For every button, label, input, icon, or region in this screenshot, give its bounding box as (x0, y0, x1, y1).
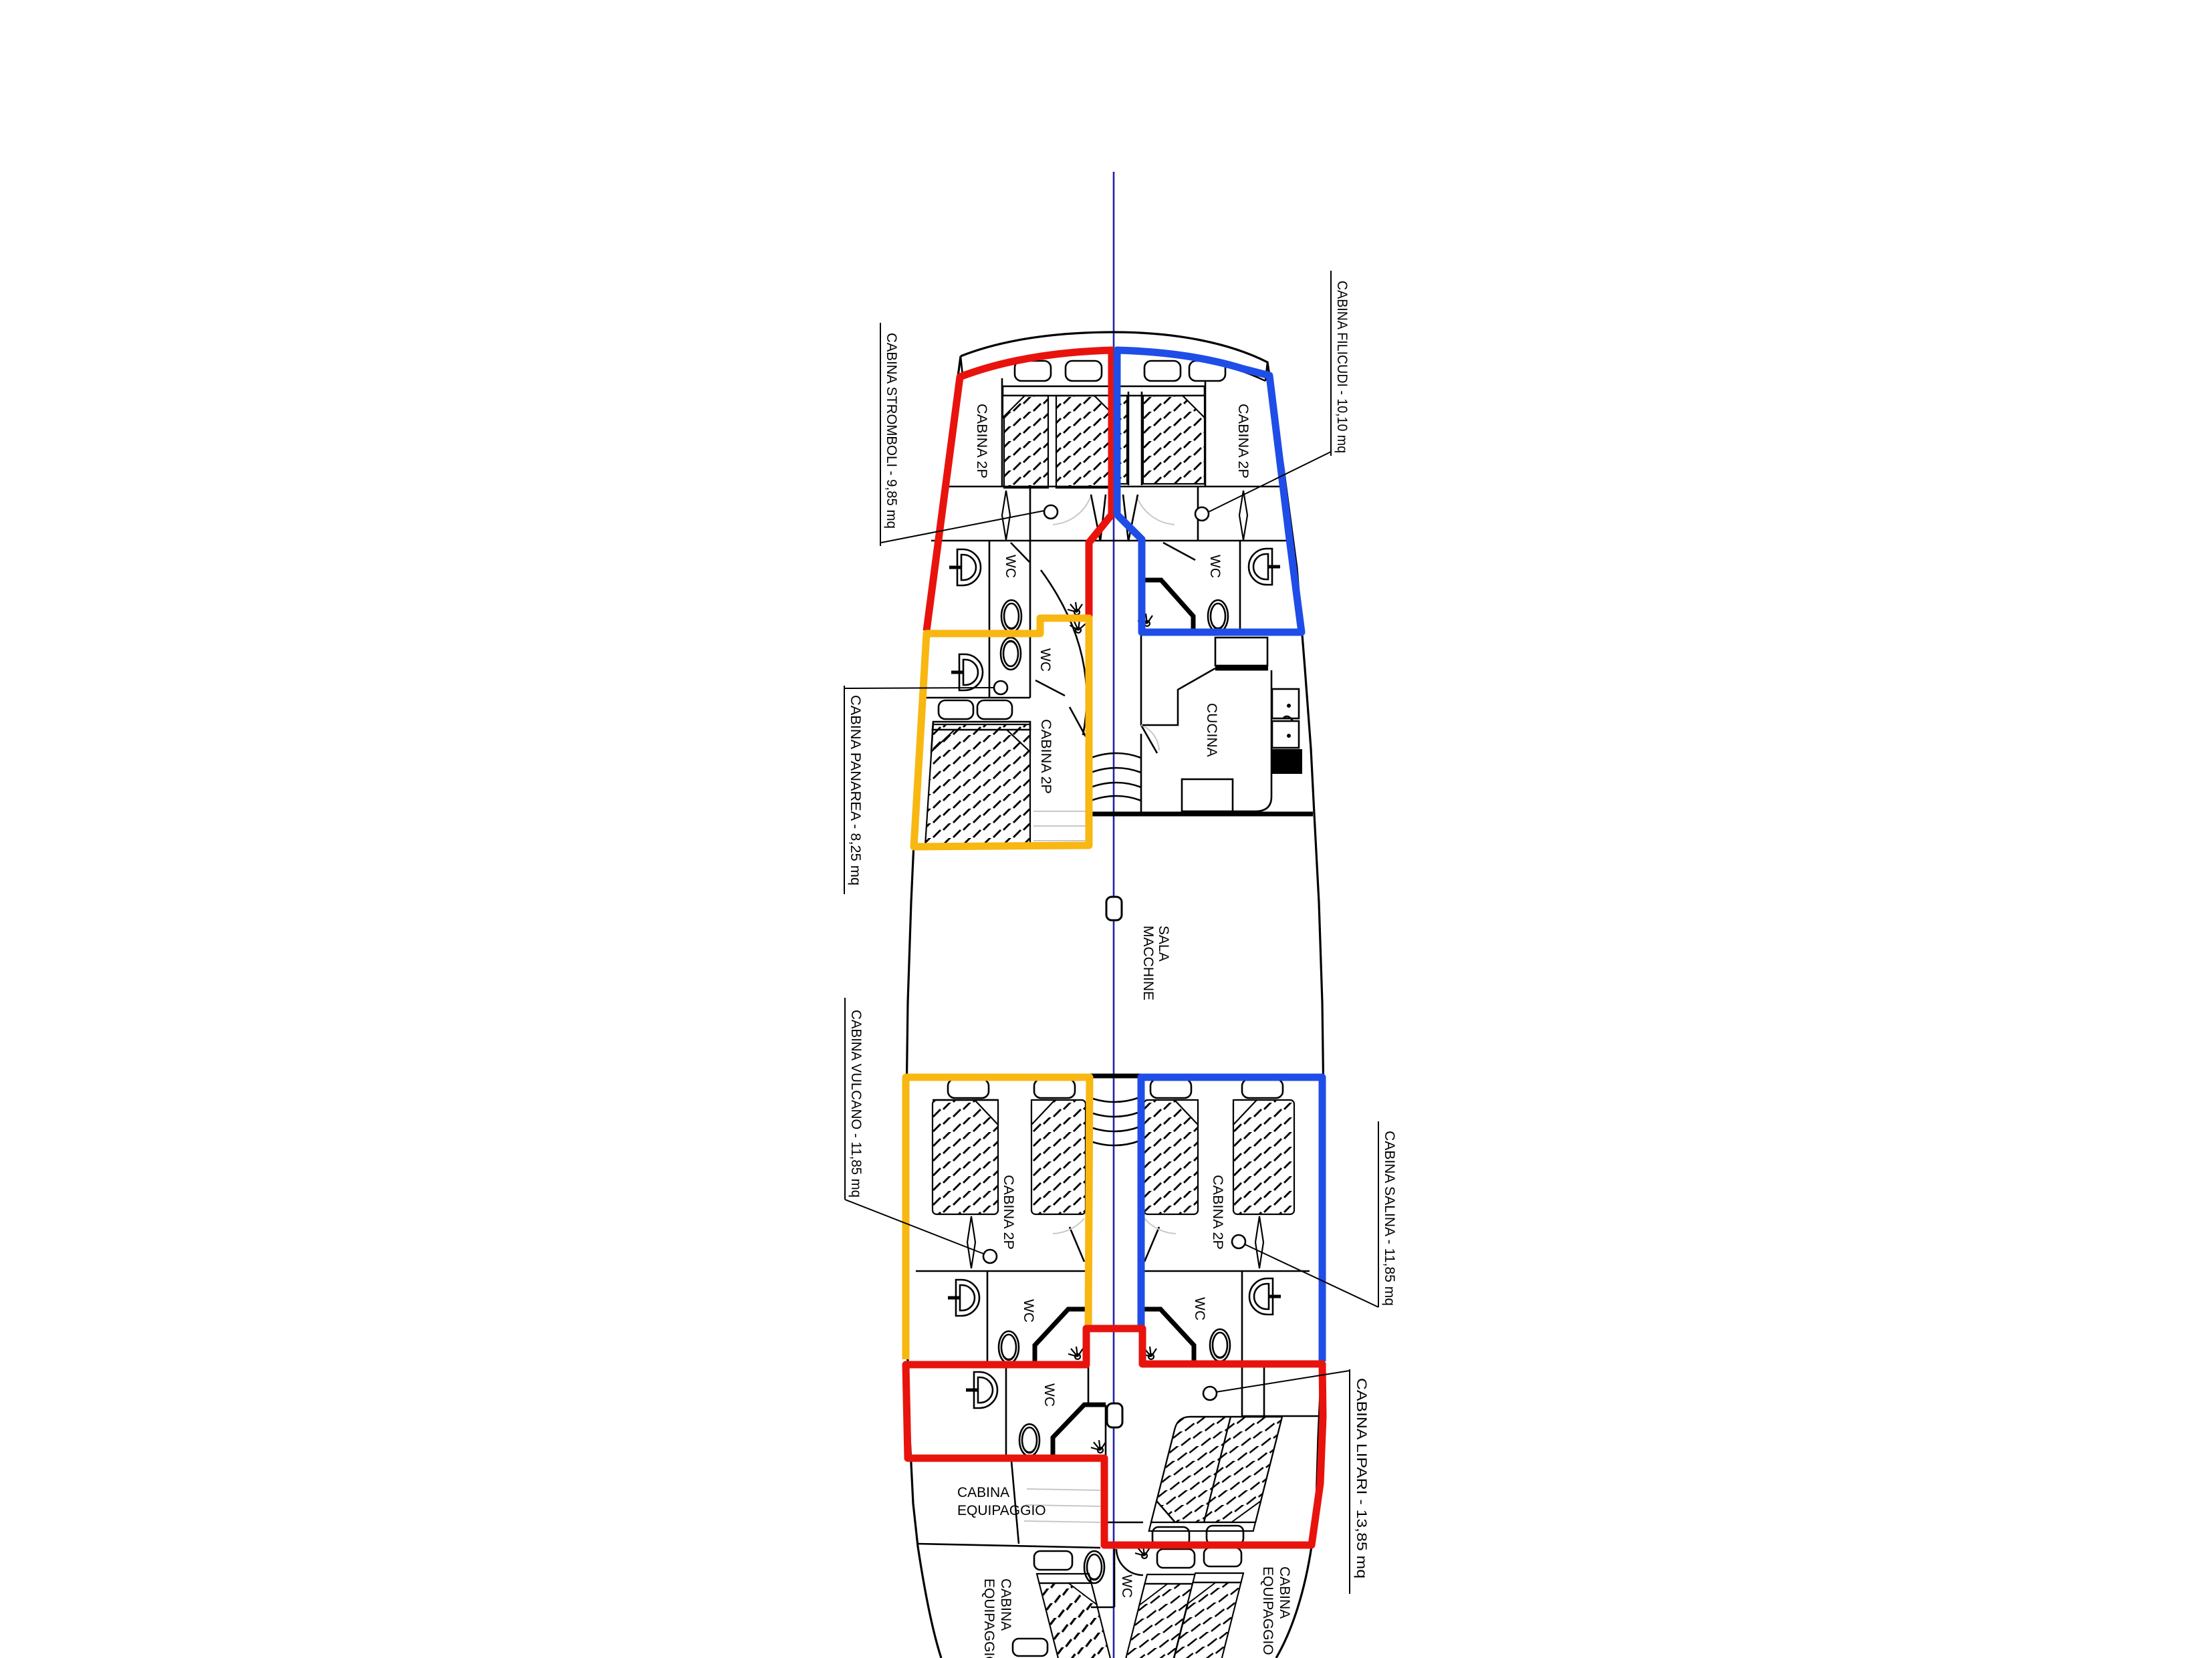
svg-text:CABINA VULCANO - 11,85 mq: CABINA VULCANO - 11,85 mq (848, 1010, 864, 1198)
svg-text:CABINA SALINA - 11,85 mq: CABINA SALINA - 11,85 mq (1382, 1131, 1397, 1306)
svg-text:CABINA: CABINA (957, 1485, 1009, 1500)
svg-text:CABINA STROMBOLI - 9,85 mq: CABINA STROMBOLI - 9,85 mq (884, 333, 899, 529)
svg-text:WC: WC (1003, 555, 1018, 578)
svg-text:CABINA PANAREA - 8,25 mq: CABINA PANAREA - 8,25 mq (848, 695, 863, 885)
svg-text:EQUIPAGGIO: EQUIPAGGIO (1260, 1566, 1275, 1655)
svg-text:WC: WC (1037, 648, 1053, 672)
svg-text:CABINA FILICUDI - 10,10 mq: CABINA FILICUDI - 10,10 mq (1334, 281, 1350, 453)
svg-text:CUCINA: CUCINA (1204, 703, 1219, 757)
svg-text:CABINA 2P: CABINA 2P (1001, 1175, 1016, 1250)
svg-text:WC: WC (1192, 1297, 1207, 1321)
svg-text:CABINA 2P: CABINA 2P (1038, 719, 1054, 794)
svg-text:CABINA: CABINA (1277, 1566, 1292, 1619)
svg-text:WC: WC (1119, 1574, 1134, 1598)
svg-text:EQUIPAGGIO: EQUIPAGGIO (957, 1503, 1046, 1518)
svg-text:WC: WC (1021, 1299, 1036, 1323)
svg-text:MACCHINE: MACCHINE (1140, 926, 1156, 1000)
svg-text:CABINA 2P: CABINA 2P (974, 404, 989, 478)
svg-text:SALA: SALA (1156, 926, 1171, 962)
svg-text:WC: WC (1207, 555, 1223, 578)
svg-text:WC: WC (1041, 1383, 1057, 1407)
svg-text:CABINA: CABINA (998, 1578, 1013, 1631)
svg-text:CABINA LIPARI - 13,85 mq: CABINA LIPARI - 13,85 mq (1354, 1378, 1369, 1578)
svg-text:CABINA 2P: CABINA 2P (1210, 1175, 1225, 1250)
svg-text:CABINA 2P: CABINA 2P (1235, 404, 1251, 478)
svg-text:EQUIPAGGIO: EQUIPAGGIO (981, 1578, 997, 1658)
